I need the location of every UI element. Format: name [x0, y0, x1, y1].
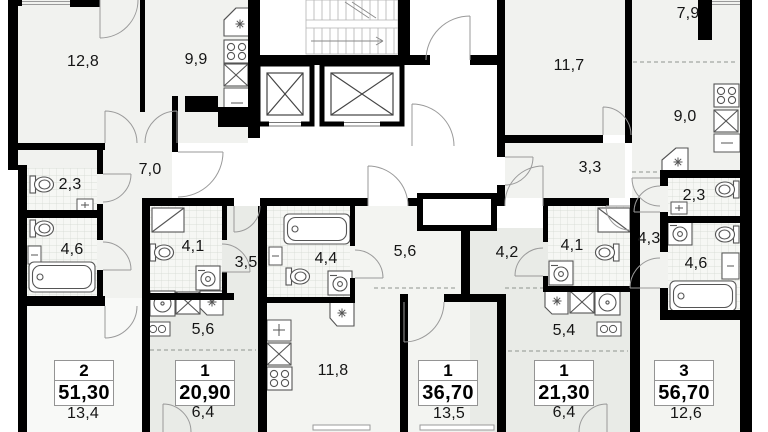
washing-machine-icon: [328, 271, 352, 295]
toilet-icon: [30, 176, 54, 193]
elevator-left-icon: [258, 64, 312, 128]
washing-machine-icon: [196, 266, 220, 290]
stamp-rooms-count: 1: [535, 361, 593, 381]
apartment-stamp-u4: 3 56,70: [654, 360, 714, 406]
washing-machine-icon: [549, 261, 573, 285]
shower-icon: [598, 208, 630, 232]
toilet-icon: [150, 244, 174, 261]
kitchen-counter-sink-icon: [267, 320, 291, 341]
area-label-u3-hall: 4,2: [496, 244, 519, 262]
area-label-u0-living: 13,4: [67, 405, 99, 423]
kitchen-sink-icon: [595, 290, 620, 315]
service-shaft: [420, 196, 494, 228]
area-label-u1-living: 6,4: [192, 404, 215, 422]
stamp-total-area: 51,30: [55, 381, 113, 405]
staircase-icon: [306, 0, 398, 54]
elevator-right-icon: [322, 64, 402, 128]
apartment-stamp-u0: 2 51,30: [54, 360, 114, 406]
bathtub-icon: [284, 214, 350, 244]
washer-under-counter-icon: [597, 322, 621, 336]
stamp-total-area: 20,90: [176, 381, 234, 405]
stamp-total-area: 21,30: [535, 381, 593, 405]
area-label-u4-hall: 3,3: [579, 159, 602, 177]
area-label-u4-bathroom: 4,6: [685, 255, 708, 273]
stamp-rooms-count: 3: [655, 361, 713, 381]
area-label-u2-hall: 5,6: [394, 243, 417, 261]
sink-icon: [269, 247, 282, 265]
area-label-u0-kitchen: 9,9: [185, 51, 208, 69]
apartment-stamp-u1: 1 20,90: [175, 360, 235, 406]
area-label-u4-bedroom: 11,7: [554, 57, 585, 75]
toilet-icon: [286, 268, 310, 285]
area-label-u1-hall: 3,5: [235, 254, 258, 272]
stamp-rooms-count: 2: [55, 361, 113, 381]
apartment-stamp-u3: 1 21,30: [534, 360, 594, 406]
cooktop-icon: [224, 40, 249, 63]
toilet-icon: [716, 181, 740, 198]
stamp-rooms-count: 1: [419, 361, 477, 381]
area-label-u3-living: 6,4: [553, 404, 576, 422]
area-label-u4-living: 12,6: [670, 405, 702, 423]
shower-icon: [152, 208, 184, 232]
area-label-u4-hall2: 4,3: [638, 230, 661, 248]
vent-hood-icon: [330, 301, 354, 326]
floor-plan: 12,8 9,9 7,0 2,3 4,6 13,4 4,1 3,5 5,6 6,…: [0, 0, 768, 432]
area-label-u1-bathroom: 4,1: [182, 238, 205, 256]
sink-icon: [28, 246, 41, 264]
area-label-u4-kitchen: 9,0: [674, 108, 697, 126]
area-label-u1-kitchen: 5,6: [192, 321, 215, 339]
bathtub-icon: [29, 262, 95, 292]
cooktop-icon: [267, 367, 292, 390]
toilet-icon: [30, 220, 54, 237]
sink-icon: [722, 253, 739, 279]
floor-plan-drawing: [0, 0, 768, 432]
sink-icon: [77, 199, 93, 211]
kitchen-counter: [714, 134, 740, 152]
cooktop-icon: [714, 84, 739, 107]
stamp-total-area: 36,70: [419, 381, 477, 405]
stove-icon: [224, 64, 248, 86]
area-label-u4-wc: 2,3: [683, 187, 706, 205]
vent-hood-icon: [545, 290, 568, 314]
stamp-total-area: 56,70: [655, 381, 713, 405]
area-label-u2-kitchen: 11,8: [318, 362, 349, 380]
area-label-u0-hall: 7,0: [139, 161, 162, 179]
toilet-icon: [716, 226, 740, 243]
area-label-u0-wc: 2,3: [59, 176, 82, 194]
washing-machine-icon: [668, 221, 692, 245]
area-label-u0-bedroom: 12,8: [67, 53, 99, 71]
stove-icon: [714, 110, 738, 132]
apartment-stamp-u2: 1 36,70: [418, 360, 478, 406]
stove-icon: [570, 291, 594, 313]
stove-icon: [267, 343, 291, 365]
stamp-rooms-count: 1: [176, 361, 234, 381]
area-label-u2-bathroom: 4,4: [315, 250, 338, 268]
toilet-icon: [596, 244, 620, 261]
area-label-u0-bathroom: 4,6: [61, 241, 84, 259]
area-label-u3-kitchen: 5,4: [553, 322, 576, 340]
area-label-u3-bathroom: 4,1: [561, 237, 584, 255]
bathtub-icon: [670, 281, 736, 311]
area-label-u2-living: 13,5: [433, 405, 465, 423]
area-label-u4-bedroom2: 7,9: [677, 5, 700, 23]
